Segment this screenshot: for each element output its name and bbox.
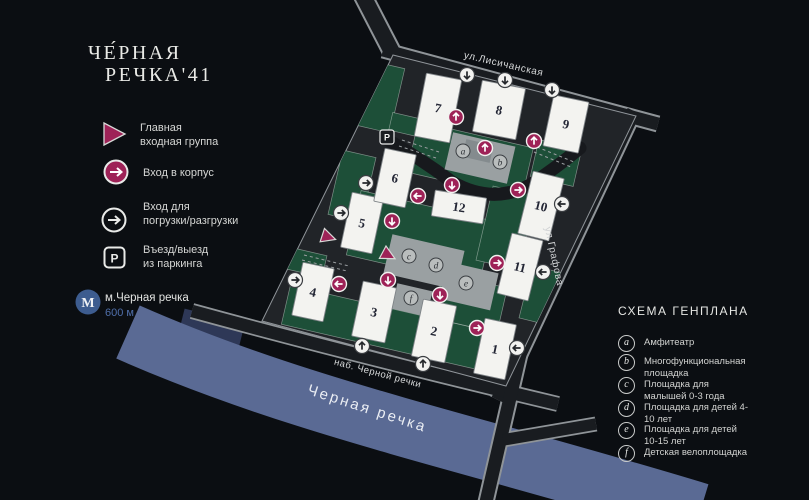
loading-entrance-icon [359,176,374,191]
legend-parking: Въезд/выезд из паркинга [143,244,208,271]
map-marker-d: d [429,258,443,272]
loading-entrance-icon [510,341,525,356]
loading-entrance-icon [545,83,560,98]
map-marker-a: a [456,144,470,158]
brand-line1: ЧЕ́РНАЯ [88,42,213,64]
legend-item-kids-10-15: e Площадка для детей 10-15 лет [618,422,752,447]
loading-entrance-icon [288,273,303,288]
marker-f-chip: f [618,445,635,462]
svg-text:e: e [464,279,468,289]
brand-logo: ЧЕ́РНАЯ РЕЧКА'41 [88,42,213,86]
building-entrance-icon [449,110,464,125]
loading-entrance-icon [100,206,128,234]
loading-entrance-icon [355,339,370,354]
map-marker-c: c [402,249,416,263]
marker-d-chip: d [618,400,635,417]
svg-text:b: b [498,158,503,168]
loading-entrance-icon [536,265,551,280]
svg-text:a: a [461,147,466,157]
building-number: 12 [451,199,466,216]
legend-item-bike: f Детская велоплощадка [618,445,752,462]
legend-building-entrance: Вход в корпус [143,167,214,181]
loading-entrance-icon [460,68,475,83]
svg-text:P: P [384,133,390,143]
svg-text:d: d [434,261,439,271]
loading-entrance-icon [334,206,349,221]
building-entrance-icon [445,178,460,193]
building-8: 8 [472,80,525,139]
building-entrance-icon [470,321,485,336]
metro-station-name: м.Черная речка [105,292,189,304]
building-entrance-icon [385,214,400,229]
map-marker-f: f [404,291,418,305]
marker-e-chip: e [618,422,635,439]
building-entrance-icon [102,158,130,186]
loading-entrance-icon [498,73,513,88]
genplan-legend: СХЕМА ГЕНПЛАНА a Амфитеатр b Многофункци… [618,304,768,318]
building-entrance-icon [381,273,396,288]
map-marker-b: b [493,155,507,169]
building-entrance-icon [332,277,347,292]
building-entrance-icon [411,189,426,204]
svg-text:P: P [110,252,118,266]
marker-c-chip: c [618,377,635,394]
marker-a-chip: a [618,335,635,352]
parking-entrance-icon: P [380,130,394,144]
building-entrance-icon [490,256,505,271]
marker-b-chip: b [618,354,635,371]
masterplan-page: 123456789101112abcdefPул.Лисичанскаяул.Г… [0,0,809,500]
legend-main-entrance: Главная входная группа [140,122,218,149]
metro-icon: М [74,288,102,316]
parking-icon: P [101,244,129,272]
brand-line2: РЕЧКА'41 [105,64,213,86]
loading-entrance-icon [416,357,431,372]
building-entrance-icon [527,134,542,149]
building-entrance-icon [511,183,526,198]
left-panel: ЧЕ́РНАЯ РЕЧКА'41 Главная входная группа … [0,0,280,500]
svg-text:М: М [81,296,94,311]
main-entrance-triangle-icon [100,120,128,148]
legend-item-multisport: b Многофункциональная площадка [618,354,752,379]
building-entrance-icon [478,141,493,156]
legend-item-amphitheater: a Амфитеатр [618,335,752,352]
building-entrance-icon [433,288,448,303]
genplan-legend-title: СХЕМА ГЕНПЛАНА [618,304,768,318]
loading-entrance-icon [555,197,570,212]
legend-loading-entrance: Вход для погрузки/разгрузки [143,201,238,228]
legend-item-toddlers: c Площадка для малышей 0-3 года [618,377,752,402]
map-marker-e: e [459,276,473,290]
metro-distance: 600 м [105,307,134,319]
